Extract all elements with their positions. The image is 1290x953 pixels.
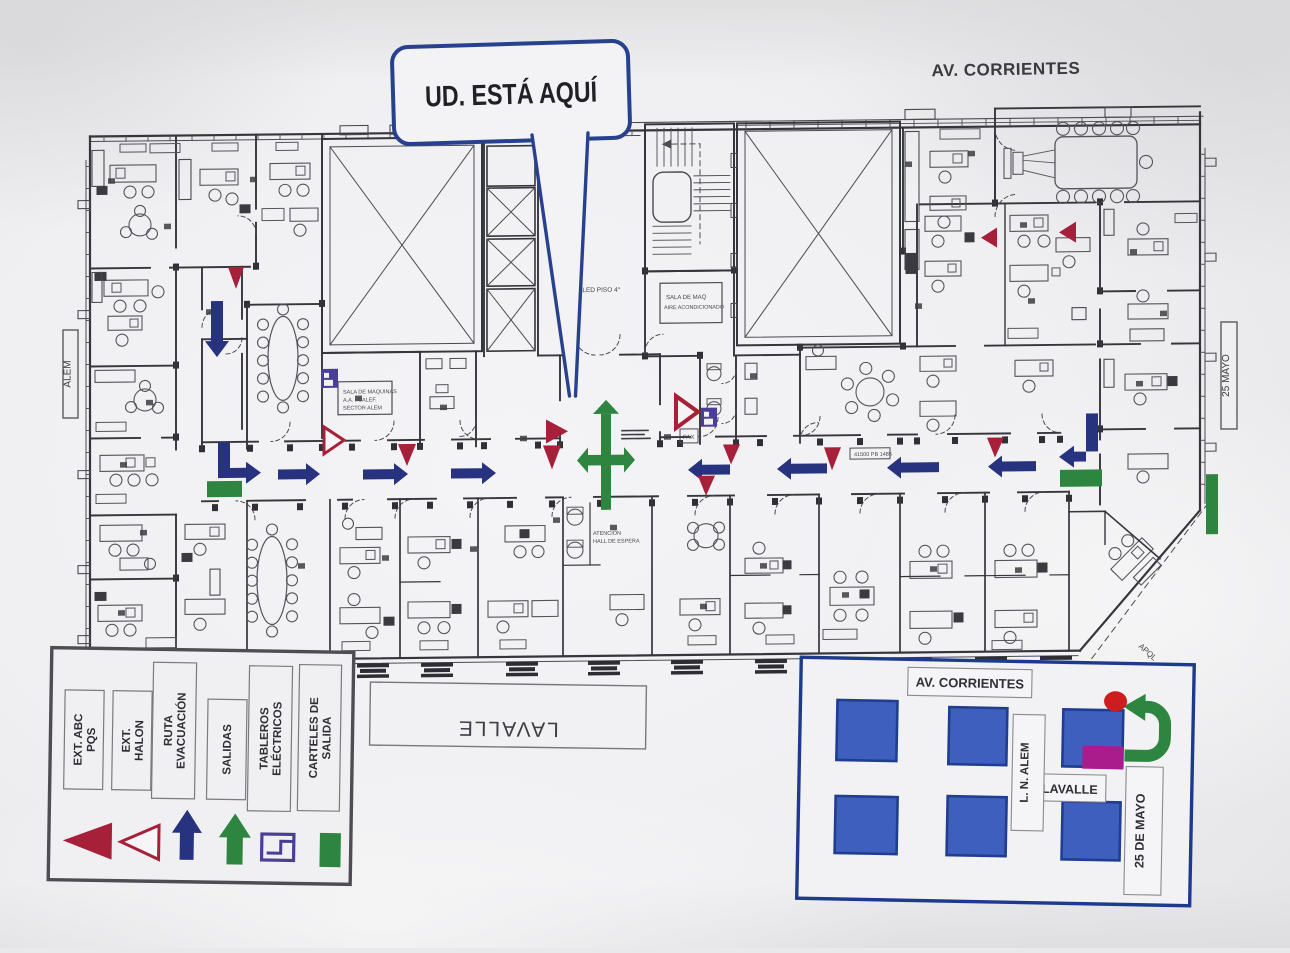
svg-text:HALL DE ESPERA: HALL DE ESPERA (593, 538, 640, 545)
svg-text:SALA DE MAQUINAS: SALA DE MAQUINAS (343, 389, 397, 396)
svg-text:AV. CORRIENTES: AV. CORRIENTES (931, 59, 1080, 81)
svg-text:LAVALLE: LAVALLE (457, 716, 559, 740)
svg-text:ALED PISO 4°: ALED PISO 4° (578, 286, 621, 294)
svg-text:SALIDAS: SALIDAS (221, 724, 234, 775)
svg-text:SECTOR ALEM: SECTOR ALEM (343, 405, 382, 411)
svg-text:ALEM: ALEM (63, 360, 74, 387)
svg-text:TABLEROSELÉCTRICOS: TABLEROSELÉCTRICOS (258, 701, 284, 776)
svg-text:SALA DE MAQ: SALA DE MAQ (666, 295, 707, 301)
svg-text:25 DE MAYO: 25 DE MAYO (1132, 793, 1147, 868)
svg-text:25 MAYO: 25 MAYO (1221, 354, 1232, 397)
svg-text:L. N. ALEM: L. N. ALEM (1019, 742, 1032, 802)
svg-text:ATENCIÓN: ATENCIÓN (593, 530, 621, 537)
svg-text:AIRE ACONDICIONADO: AIRE ACONDICIONADO (664, 305, 724, 312)
svg-text:FAX: FAX (683, 435, 694, 441)
svg-text:LAVALLE: LAVALLE (1042, 782, 1098, 797)
svg-text:UD. ESTÁ AQUÍ: UD. ESTÁ AQUÍ (425, 74, 599, 113)
svg-text:AV. CORRIENTES: AV. CORRIENTES (916, 674, 1025, 691)
svg-text:41500 PB 1485: 41500 PB 1485 (854, 452, 892, 458)
